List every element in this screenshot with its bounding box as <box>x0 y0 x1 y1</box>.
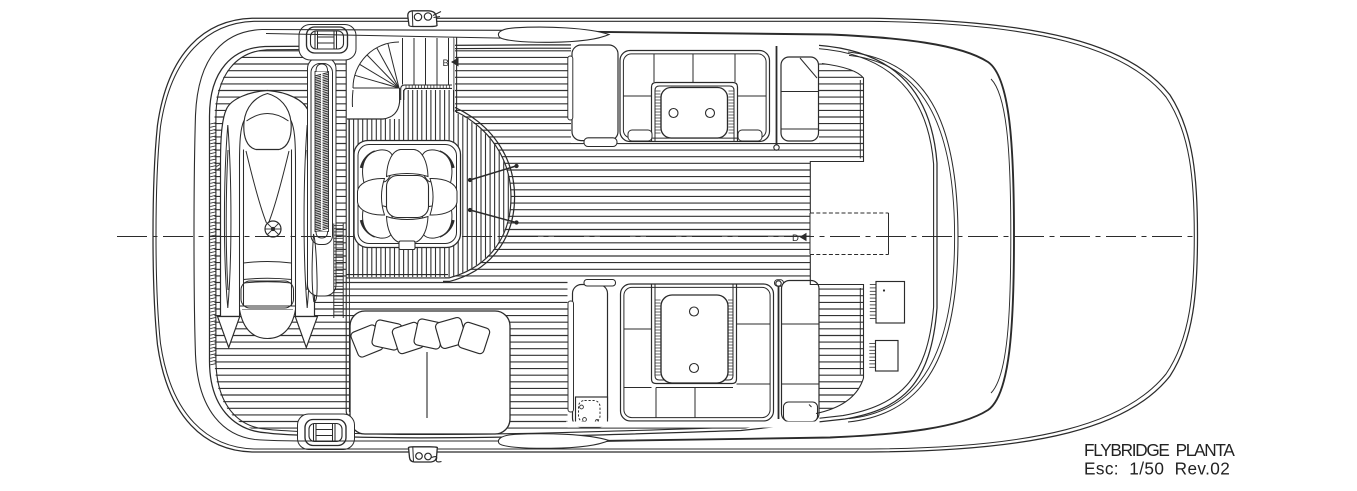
svg-text:D: D <box>792 233 799 244</box>
svg-text:Esc: 1/50 Rev.02: Esc: 1/50 Rev.02 <box>1084 459 1230 479</box>
svg-text:B: B <box>443 58 449 69</box>
svg-text:FLYBRIDGE PLANTA: FLYBRIDGE PLANTA <box>1084 440 1235 460</box>
